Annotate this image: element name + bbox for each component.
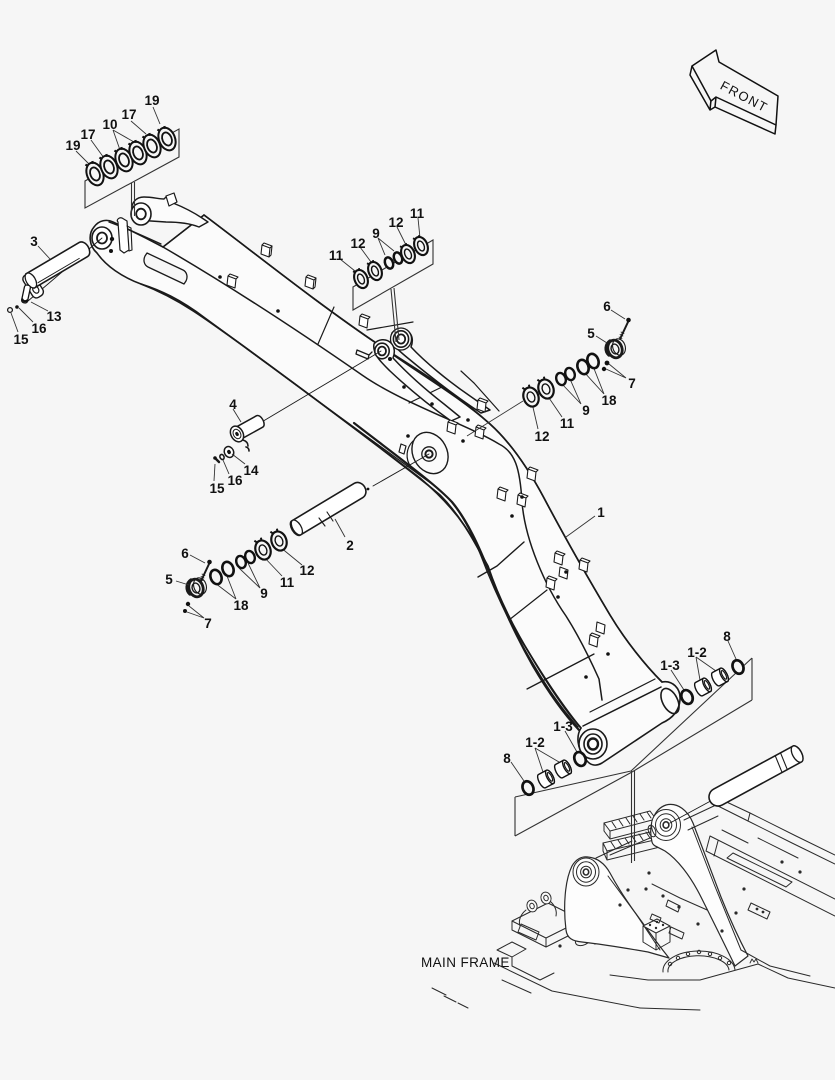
svg-text:2: 2: [346, 538, 354, 553]
svg-text:18: 18: [233, 598, 249, 613]
svg-text:11: 11: [280, 575, 295, 590]
svg-text:7: 7: [204, 616, 212, 631]
svg-text:11: 11: [410, 206, 425, 221]
svg-text:6: 6: [603, 299, 611, 314]
svg-text:5: 5: [165, 572, 173, 587]
svg-text:16: 16: [227, 473, 243, 488]
svg-text:1-2: 1-2: [687, 645, 707, 660]
svg-text:18: 18: [601, 393, 617, 408]
svg-text:15: 15: [13, 332, 29, 347]
svg-text:6: 6: [181, 546, 189, 561]
svg-text:10: 10: [102, 117, 117, 132]
svg-text:9: 9: [372, 226, 380, 241]
svg-text:17: 17: [121, 107, 136, 122]
svg-text:12: 12: [388, 215, 403, 230]
svg-text:5: 5: [587, 326, 595, 341]
svg-text:15: 15: [209, 481, 225, 496]
svg-text:9: 9: [582, 403, 590, 418]
svg-text:7: 7: [628, 376, 636, 391]
svg-text:1-3: 1-3: [553, 719, 573, 734]
svg-text:12: 12: [350, 236, 365, 251]
svg-text:12: 12: [534, 429, 549, 444]
svg-text:9: 9: [260, 586, 268, 601]
svg-text:11: 11: [329, 248, 344, 263]
svg-text:4: 4: [229, 397, 237, 412]
svg-text:12: 12: [299, 563, 314, 578]
svg-text:19: 19: [144, 93, 159, 108]
svg-text:19: 19: [65, 138, 80, 153]
svg-text:13: 13: [46, 309, 62, 324]
svg-text:1-3: 1-3: [660, 658, 680, 673]
svg-text:17: 17: [80, 127, 95, 142]
svg-text:1: 1: [597, 505, 605, 520]
svg-text:8: 8: [723, 629, 731, 644]
svg-text:16: 16: [31, 321, 47, 336]
svg-text:MAIN FRAME: MAIN FRAME: [421, 955, 510, 970]
svg-text:8: 8: [503, 751, 511, 766]
svg-text:11: 11: [560, 416, 575, 431]
svg-text:14: 14: [243, 463, 259, 478]
svg-text:1-2: 1-2: [525, 735, 545, 750]
svg-text:3: 3: [30, 234, 38, 249]
